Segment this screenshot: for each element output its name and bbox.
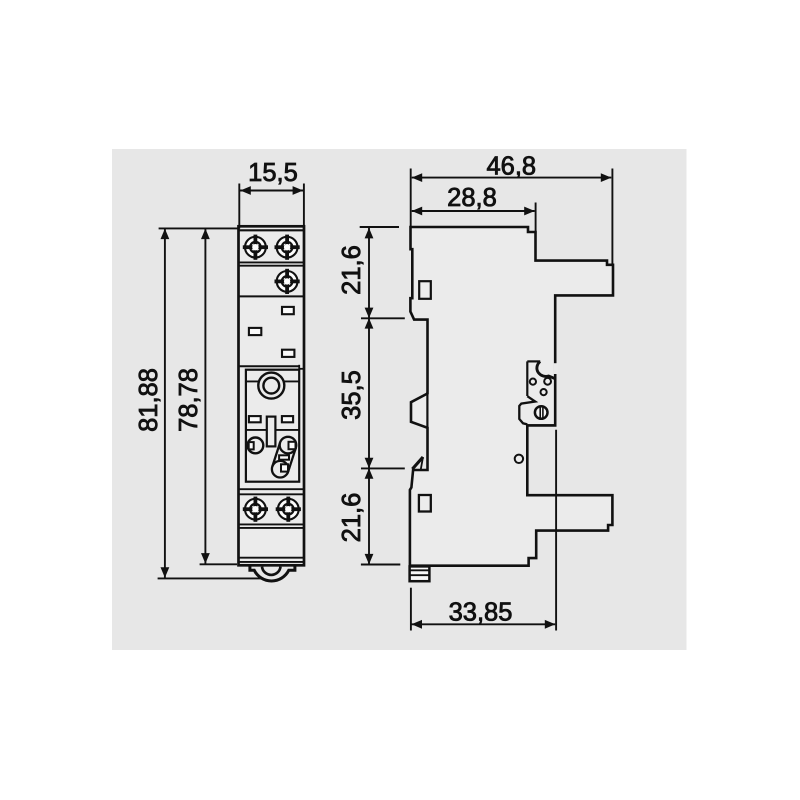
svg-text:21,6: 21,6 xyxy=(338,245,366,295)
svg-text:33,85: 33,85 xyxy=(449,599,513,627)
svg-text:35,5: 35,5 xyxy=(338,370,366,420)
svg-text:46,8: 46,8 xyxy=(486,153,536,181)
svg-text:21,6: 21,6 xyxy=(338,493,366,543)
svg-text:15,5: 15,5 xyxy=(248,159,298,187)
svg-text:78,78: 78,78 xyxy=(175,368,203,432)
svg-text:81,88: 81,88 xyxy=(135,368,163,432)
svg-text:28,8: 28,8 xyxy=(447,184,497,212)
